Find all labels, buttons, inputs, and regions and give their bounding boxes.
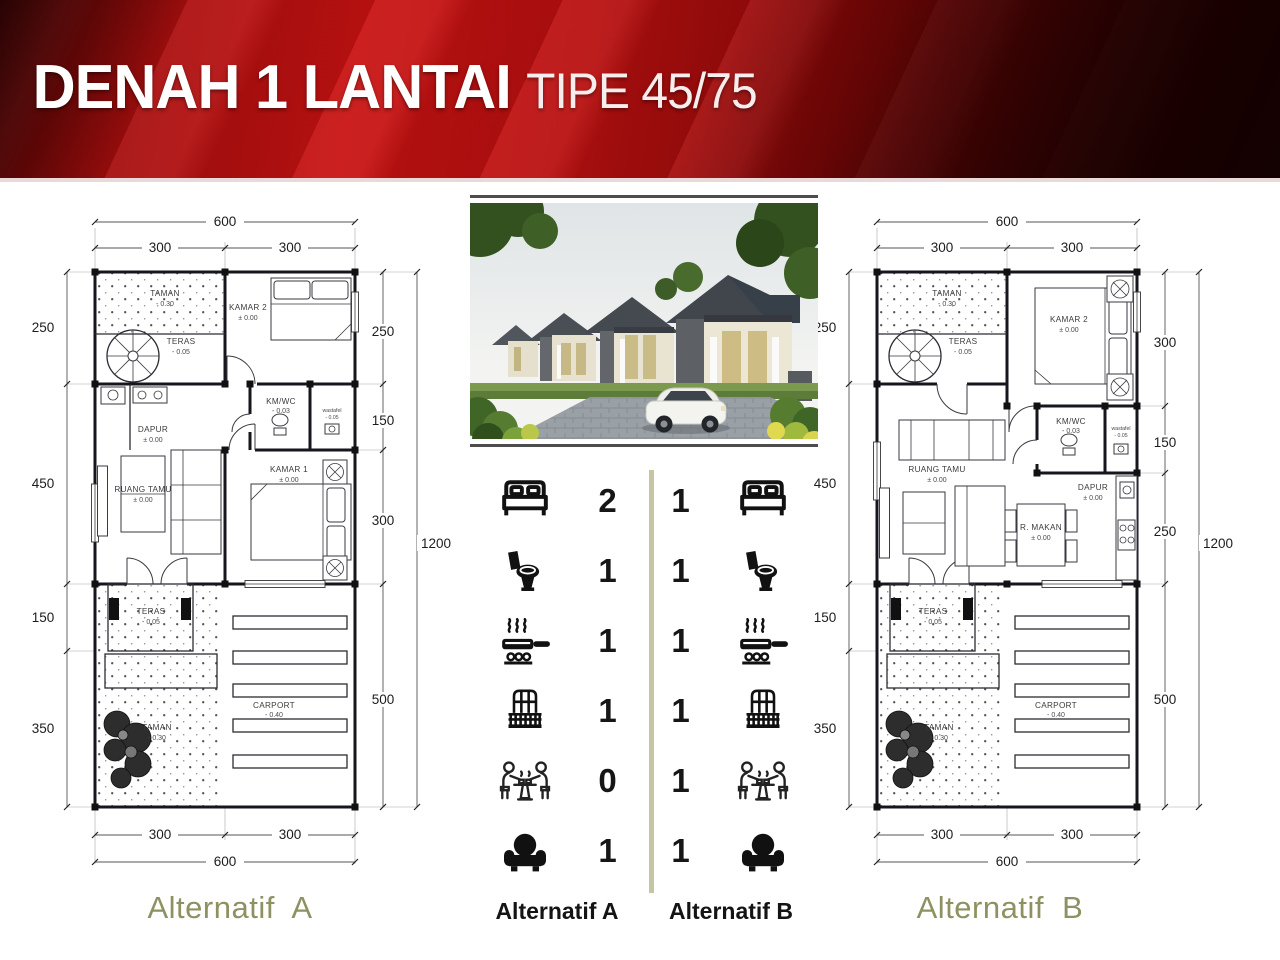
floor-plan-a: 600 300 300 300 300 600 250 450 150 350 …: [5, 192, 457, 892]
page-title: DENAH 1 LANTAI: [33, 53, 511, 122]
dining-icon: [495, 757, 555, 805]
svg-text:1200: 1200: [421, 536, 451, 551]
svg-text:300: 300: [149, 240, 172, 255]
svg-text:300: 300: [1061, 827, 1084, 842]
toilet-icon: [503, 547, 547, 595]
svg-text:RUANG TAMU: RUANG TAMU: [114, 485, 171, 494]
count-a-bathroom: 1: [598, 552, 616, 590]
sofa-icon: [501, 829, 549, 873]
stove-pan-icon: [498, 616, 552, 666]
svg-text:500: 500: [1154, 692, 1177, 707]
svg-text:250: 250: [1154, 524, 1177, 539]
sofa-set: [880, 420, 1006, 566]
svg-text:TERAS: TERAS: [919, 607, 948, 616]
sofa-set: [98, 450, 222, 554]
svg-text:DAPUR: DAPUR: [138, 425, 168, 434]
spiral-staircase: [107, 330, 159, 382]
svg-text:R. MAKAN: R. MAKAN: [1020, 523, 1062, 532]
svg-text:- 0.05: - 0.05: [954, 349, 972, 356]
plan-b-caption: Alternatif B: [800, 890, 1200, 926]
svg-text:600: 600: [214, 854, 237, 869]
svg-text:± 0.00: ± 0.00: [133, 497, 153, 504]
svg-text:DAPUR: DAPUR: [1078, 483, 1108, 492]
house-render-photo: [470, 195, 818, 447]
svg-text:- 0.05: - 0.05: [924, 619, 942, 626]
svg-text:± 0.00: ± 0.00: [279, 477, 299, 484]
svg-text:300: 300: [279, 827, 302, 842]
svg-text:- 0.40: - 0.40: [265, 712, 283, 719]
svg-text:1200: 1200: [1203, 536, 1233, 551]
carport-strips: [233, 616, 347, 768]
count-a-balcony: 1: [598, 692, 616, 730]
svg-text:300: 300: [149, 827, 172, 842]
count-b-balcony: 1: [671, 692, 689, 730]
slide-header: DENAH 1 LANTAITIPE 45/75: [0, 0, 1280, 182]
svg-text:- 0.30: - 0.30: [148, 735, 166, 742]
carport-strips: [1015, 616, 1129, 768]
svg-text:± 0.00: ± 0.00: [1031, 535, 1051, 542]
bed-symbol-kamar2: [271, 278, 351, 340]
compare-row-bathroom: 1 1: [470, 536, 818, 606]
svg-text:- 0.30: - 0.30: [156, 301, 174, 308]
toilet-icon: [741, 547, 785, 595]
toilet-symbol: [1061, 434, 1077, 455]
svg-text:KM/WC: KM/WC: [1056, 417, 1086, 426]
svg-text:150: 150: [1154, 435, 1177, 450]
svg-text:450: 450: [32, 476, 55, 491]
svg-text:± 0.00: ± 0.00: [927, 477, 947, 484]
svg-text:KAMAR 1: KAMAR 1: [270, 465, 308, 474]
count-a-dining: 0: [598, 762, 616, 800]
count-a-bedroom: 2: [598, 482, 616, 520]
wastafel-symbol: [325, 424, 339, 434]
svg-text:- 0.30: - 0.30: [938, 301, 956, 308]
svg-text:300: 300: [372, 513, 395, 528]
svg-text:wastafel: wastafel: [1111, 426, 1130, 432]
stove-pan-icon: [736, 616, 790, 666]
svg-text:TAMAN: TAMAN: [932, 289, 962, 298]
dining-icon: [733, 757, 793, 805]
svg-text:600: 600: [214, 214, 237, 229]
svg-text:600: 600: [996, 854, 1019, 869]
kitchen-counter: [101, 387, 167, 404]
svg-text:- 0.05: - 0.05: [142, 619, 160, 626]
bed-symbol-kamar1: [251, 484, 351, 560]
toilet-symbol: [272, 414, 288, 435]
wastafel-symbol: [1114, 444, 1128, 454]
compare-row-kitchen: 1 1: [470, 606, 818, 676]
svg-text:KM/WC: KM/WC: [266, 397, 296, 406]
compare-row-bedroom: 2 1: [470, 466, 818, 536]
svg-text:300: 300: [279, 240, 302, 255]
page-subtitle: TIPE 45/75: [526, 63, 757, 119]
count-a-kitchen: 1: [598, 622, 616, 660]
svg-text:± 0.00: ± 0.00: [238, 315, 258, 322]
svg-text:RUANG TAMU: RUANG TAMU: [908, 465, 965, 474]
svg-text:300: 300: [931, 240, 954, 255]
svg-text:- 0.05: - 0.05: [325, 415, 338, 421]
count-b-dining: 1: [671, 762, 689, 800]
svg-text:KAMAR 2: KAMAR 2: [1050, 315, 1088, 324]
kitchen-counter: [1116, 476, 1137, 580]
svg-text:500: 500: [372, 692, 395, 707]
svg-text:TAMAN: TAMAN: [150, 289, 180, 298]
sofa-icon: [739, 829, 787, 873]
svg-text:- 0.40: - 0.40: [1047, 712, 1065, 719]
floor-plan-b: 600 300 300 300 300 600 250 450 150 350 …: [787, 192, 1239, 892]
comparison-label-a: Alternatif A: [470, 898, 644, 925]
svg-text:350: 350: [32, 721, 55, 736]
svg-text:KAMAR 2: KAMAR 2: [229, 303, 267, 312]
count-b-living: 1: [671, 832, 689, 870]
comparison-column-labels: Alternatif A Alternatif B: [470, 898, 818, 925]
bed-icon: [738, 478, 788, 524]
svg-text:600: 600: [996, 214, 1019, 229]
svg-text:- 0.05: - 0.05: [172, 349, 190, 356]
balcony-icon: [741, 683, 785, 739]
plan-a-caption: Alternatif A: [30, 890, 430, 926]
svg-text:- 0.05: - 0.05: [1114, 433, 1127, 439]
spiral-staircase: [889, 330, 941, 382]
svg-text:TAMAN: TAMAN: [924, 723, 954, 732]
svg-text:wastafel: wastafel: [322, 408, 341, 414]
svg-text:300: 300: [931, 827, 954, 842]
svg-text:CARPORT: CARPORT: [1035, 701, 1077, 710]
comparison-label-b: Alternatif B: [644, 898, 818, 925]
count-a-living: 1: [598, 832, 616, 870]
svg-text:± 0.00: ± 0.00: [1083, 495, 1103, 502]
svg-text:TERAS: TERAS: [137, 607, 166, 616]
svg-text:- 0.03: - 0.03: [272, 408, 290, 415]
count-b-bedroom: 1: [671, 482, 689, 520]
svg-text:- 0.03: - 0.03: [1062, 428, 1080, 435]
count-b-bathroom: 1: [671, 552, 689, 590]
svg-text:150: 150: [32, 610, 55, 625]
svg-text:TERAS: TERAS: [949, 337, 978, 346]
svg-text:250: 250: [372, 324, 395, 339]
svg-text:- 0.30: - 0.30: [930, 735, 948, 742]
balcony-icon: [503, 683, 547, 739]
svg-text:TERAS: TERAS: [167, 337, 196, 346]
svg-text:250: 250: [32, 320, 55, 335]
compare-row-balcony: 1 1: [470, 676, 818, 746]
feature-comparison: 2 1 1 1: [470, 466, 818, 886]
svg-text:150: 150: [372, 413, 395, 428]
svg-text:TAMAN: TAMAN: [142, 723, 172, 732]
svg-text:300: 300: [1061, 240, 1084, 255]
compare-row-living: 1 1: [470, 816, 818, 886]
count-b-kitchen: 1: [671, 622, 689, 660]
compare-row-dining: 0 1: [470, 746, 818, 816]
house-render-scene: [470, 203, 818, 439]
svg-text:± 0.00: ± 0.00: [1059, 327, 1079, 334]
svg-text:CARPORT: CARPORT: [253, 701, 295, 710]
bed-icon: [500, 478, 550, 524]
svg-text:± 0.00: ± 0.00: [143, 437, 163, 444]
svg-text:300: 300: [1154, 335, 1177, 350]
